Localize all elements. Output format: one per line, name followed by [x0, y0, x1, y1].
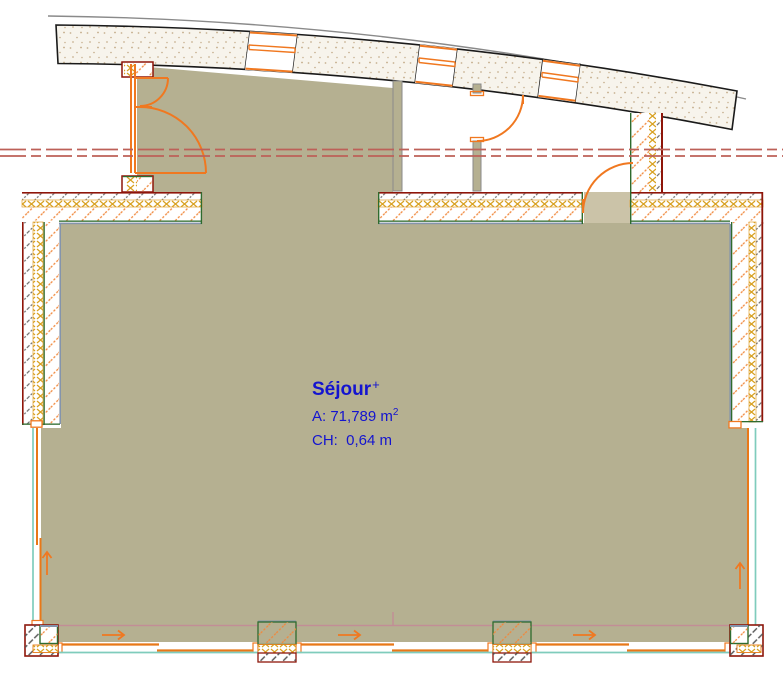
band-column-hatch	[136, 63, 152, 76]
wall-left[interactable]	[22, 222, 61, 427]
door-threshold	[584, 192, 630, 223]
room-area: A: 71,789 m2	[312, 408, 398, 424]
pier-bottom-2[interactable]	[493, 621, 531, 663]
wall-right[interactable]	[729, 222, 763, 428]
wall-top-middle[interactable]	[378, 192, 583, 224]
wall-top-right[interactable]	[630, 192, 763, 224]
room-stamp-marker: +	[372, 377, 380, 392]
band-window[interactable]	[245, 31, 297, 73]
corner-pier-right[interactable]	[730, 625, 763, 656]
pier-bottom-1[interactable]	[258, 621, 296, 663]
band-window[interactable]	[538, 60, 580, 102]
room-name: Séjour+	[312, 380, 398, 399]
wall-upper-right-vertical[interactable]	[630, 113, 663, 192]
corner-pier-left[interactable]	[25, 625, 58, 656]
room-ceiling-height: CH: 0,64 m	[312, 433, 398, 448]
floor-plan-canvas	[0, 0, 783, 676]
room-stamp[interactable]: Séjour+ A: 71,789 m2 CH: 0,64 m	[312, 380, 398, 448]
cad-floor-plan-view: Séjour+ A: 71,789 m2 CH: 0,64 m	[0, 0, 783, 676]
band-window[interactable]	[415, 45, 457, 87]
